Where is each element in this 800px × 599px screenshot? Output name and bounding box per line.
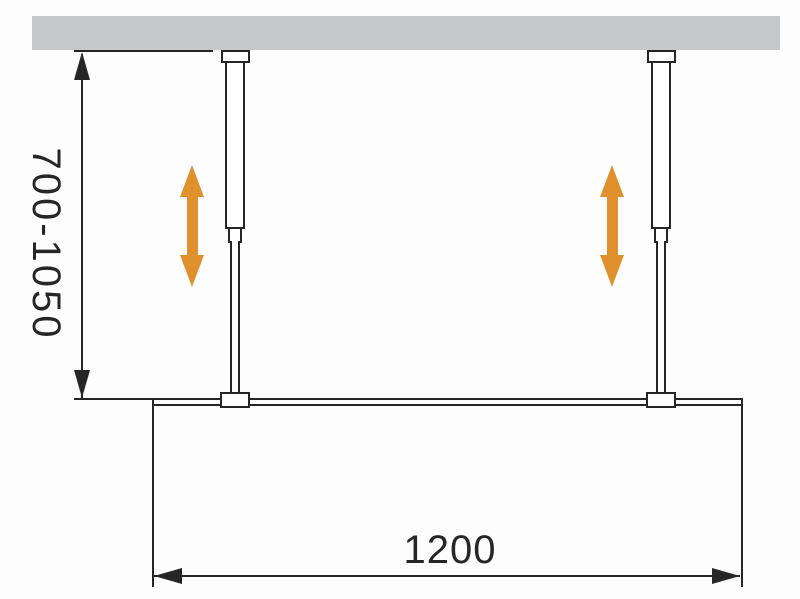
arrowhead-left-icon (154, 568, 182, 584)
arrowhead-down-icon (74, 370, 90, 398)
arrow-shaft (607, 195, 618, 257)
glass-clamp (220, 392, 250, 408)
ceiling-bar (32, 16, 780, 50)
arrowhead-up-icon (74, 52, 90, 80)
diagram-canvas: 700-1050 1200 (0, 0, 800, 599)
upper-tube (651, 61, 671, 229)
upper-tube (225, 61, 245, 229)
glass-left-edge (152, 398, 154, 587)
arrow-down-head (180, 255, 204, 287)
arrowhead-right-icon (712, 568, 740, 584)
glass-right-edge (741, 398, 743, 587)
height-range-label: 700-1050 (24, 134, 68, 354)
arrow-up-head (180, 165, 204, 197)
lower-rod (656, 241, 666, 393)
arrow-shaft (187, 195, 198, 257)
horizontal-dimension-line (154, 575, 740, 577)
ceiling-extension-line (74, 50, 213, 52)
arrow-down-head (600, 255, 624, 287)
vertical-dimension-line (81, 54, 83, 398)
arrow-up-head (600, 165, 624, 197)
height-adjust-arrow-icon (180, 165, 205, 287)
glass-clamp (646, 392, 676, 408)
glass-top-outer-line (74, 398, 743, 400)
lower-rod (230, 241, 240, 393)
width-label: 1200 (340, 527, 560, 573)
height-adjust-arrow-icon (600, 165, 625, 287)
